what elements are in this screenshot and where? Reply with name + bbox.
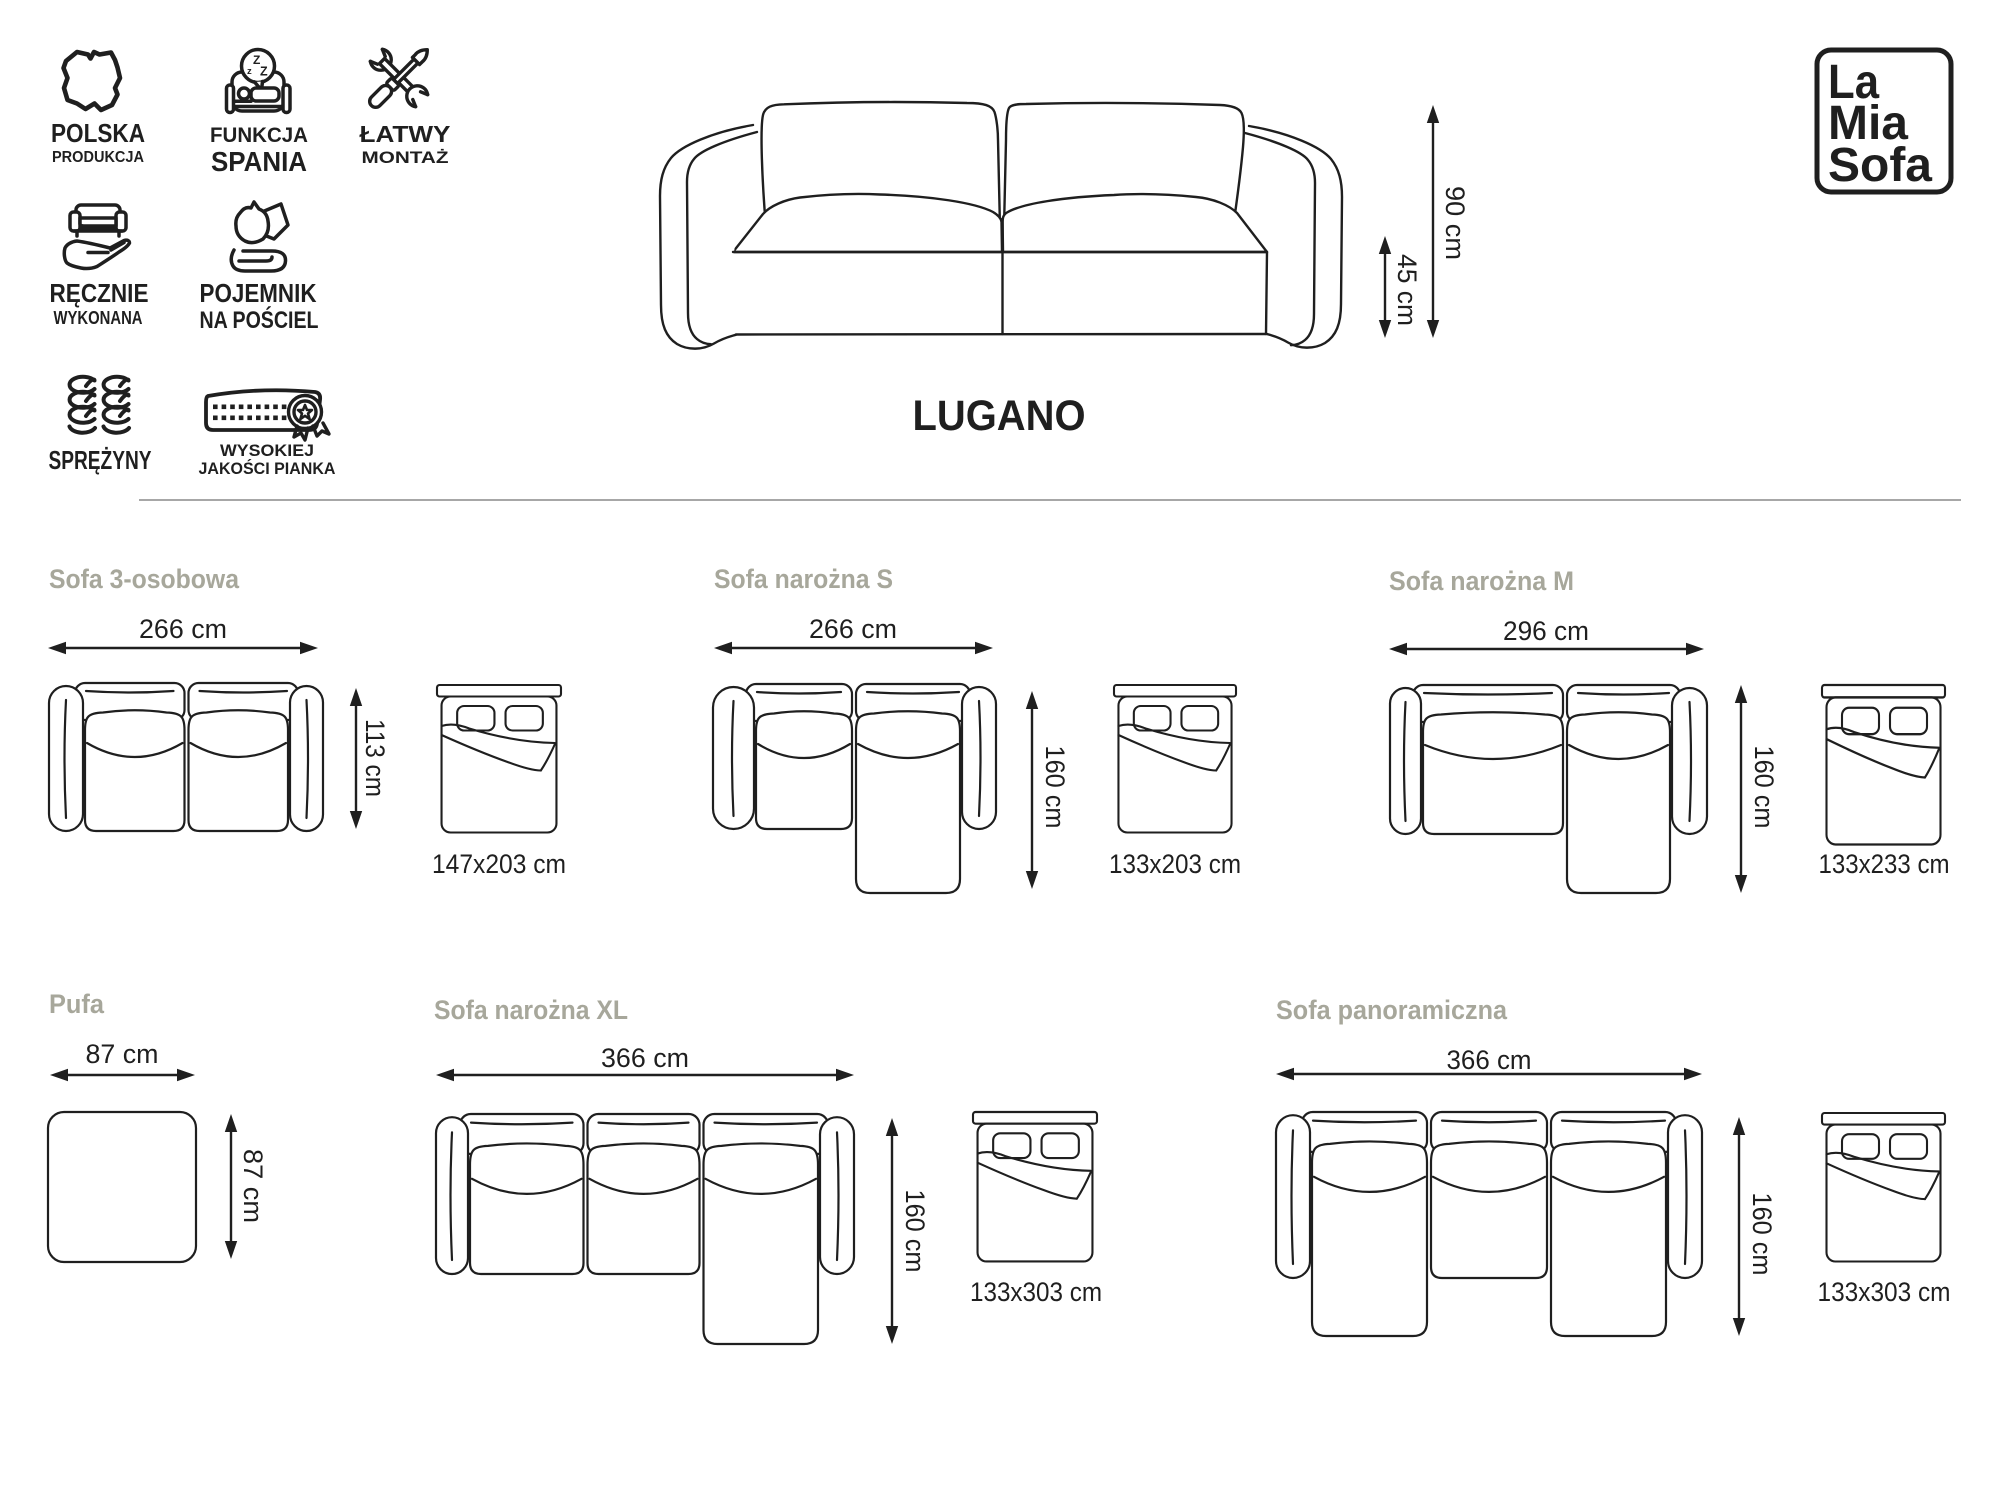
svg-text:Pufa: Pufa bbox=[49, 989, 105, 1019]
svg-text:366 cm: 366 cm bbox=[601, 1043, 689, 1073]
svg-text:Sofa narożna M: Sofa narożna M bbox=[1389, 566, 1574, 596]
svg-text:Sofa panoramiczna: Sofa panoramiczna bbox=[1276, 995, 1508, 1025]
svg-text:133x233 cm: 133x233 cm bbox=[1819, 849, 1950, 879]
svg-text:160 cm: 160 cm bbox=[1747, 1193, 1777, 1276]
svg-text:266 cm: 266 cm bbox=[139, 614, 227, 644]
svg-text:160 cm: 160 cm bbox=[1749, 746, 1779, 829]
svg-text:POLSKA: POLSKA bbox=[51, 118, 145, 148]
svg-text:266 cm: 266 cm bbox=[809, 614, 897, 644]
svg-text:SPANIA: SPANIA bbox=[211, 146, 307, 177]
svg-text:PRODUKCJA: PRODUKCJA bbox=[52, 149, 144, 166]
svg-text:Sofa: Sofa bbox=[1828, 139, 1932, 192]
svg-text:133x303 cm: 133x303 cm bbox=[970, 1277, 1102, 1307]
svg-text:87 cm: 87 cm bbox=[86, 1039, 159, 1069]
svg-text:90 cm: 90 cm bbox=[1440, 186, 1470, 260]
svg-text:Sofa narożna XL: Sofa narożna XL bbox=[434, 995, 628, 1025]
svg-text:NA POŚCIEL: NA POŚCIEL bbox=[200, 306, 319, 334]
svg-text:JAKOŚCI PIANKA: JAKOŚCI PIANKA bbox=[199, 459, 336, 478]
svg-text:SPRĘŻYNY: SPRĘŻYNY bbox=[49, 445, 152, 475]
svg-text:FUNKCJA: FUNKCJA bbox=[210, 124, 308, 147]
svg-text:160 cm: 160 cm bbox=[1040, 746, 1070, 829]
svg-text:160 cm: 160 cm bbox=[900, 1190, 930, 1273]
svg-text:RĘCZNIE: RĘCZNIE bbox=[50, 278, 149, 308]
svg-text:133x203 cm: 133x203 cm bbox=[1109, 849, 1241, 879]
svg-text:133x303 cm: 133x303 cm bbox=[1818, 1277, 1951, 1307]
svg-text:z: z bbox=[247, 66, 252, 77]
svg-text:147x203 cm: 147x203 cm bbox=[432, 849, 566, 879]
svg-text:366 cm: 366 cm bbox=[1447, 1045, 1532, 1075]
svg-text:113 cm: 113 cm bbox=[360, 719, 390, 797]
svg-text:MONTAŻ: MONTAŻ bbox=[362, 148, 449, 167]
svg-text:Sofa narożna S: Sofa narożna S bbox=[714, 564, 893, 594]
svg-text:POJEMNIK: POJEMNIK bbox=[200, 278, 317, 308]
svg-text:LUGANO: LUGANO bbox=[913, 392, 1086, 440]
svg-text:296 cm: 296 cm bbox=[1503, 616, 1589, 646]
svg-text:Z: Z bbox=[260, 65, 268, 79]
svg-text:45 cm: 45 cm bbox=[1392, 254, 1422, 326]
svg-text:WYSOKIEJ: WYSOKIEJ bbox=[220, 441, 314, 460]
svg-text:Sofa 3-osobowa: Sofa 3-osobowa bbox=[49, 564, 240, 594]
svg-text:WYKONANA: WYKONANA bbox=[54, 308, 143, 328]
svg-text:87 cm: 87 cm bbox=[238, 1149, 268, 1223]
svg-text:ŁATWY: ŁATWY bbox=[360, 121, 451, 147]
